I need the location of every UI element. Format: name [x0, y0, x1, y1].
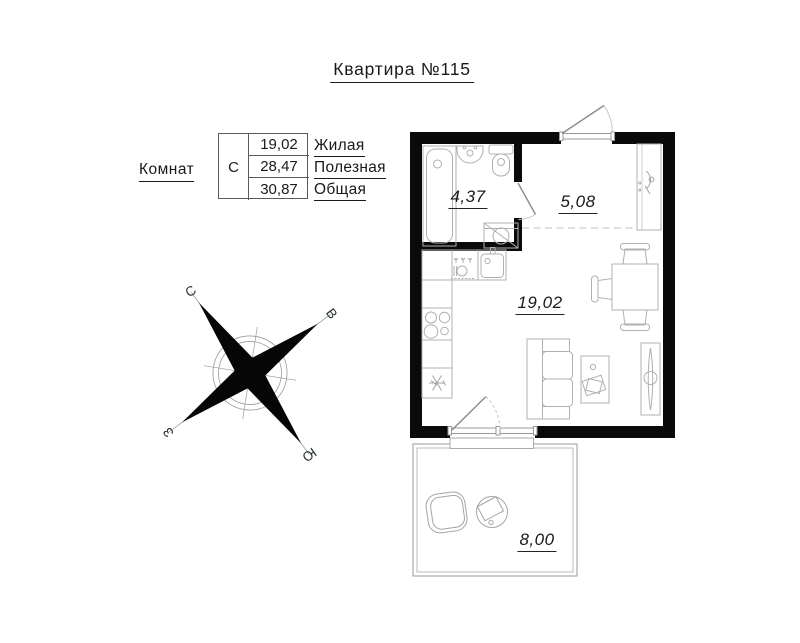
dishwasher-icon	[451, 258, 475, 279]
compass-star	[140, 258, 360, 488]
stove-icon	[424, 312, 449, 338]
chair-icon	[592, 276, 613, 302]
kitchen-sink-icon	[481, 248, 504, 278]
hallway-area-label: 5,08	[558, 192, 597, 214]
hanger-icon	[645, 171, 654, 194]
bathroom-door	[518, 183, 536, 220]
balcony	[413, 444, 577, 576]
compass-north-label: С	[182, 282, 199, 300]
living-area-value: 19,02	[249, 134, 309, 156]
chair-icon	[621, 244, 650, 265]
rooms-label: Комнат	[139, 161, 194, 182]
living-area-label: Жилая	[314, 136, 365, 158]
wardrobe-icon	[637, 144, 661, 230]
chair-icon	[621, 310, 650, 331]
living-room-area-label: 19,02	[515, 293, 564, 315]
compass-south-label: Ю	[299, 445, 319, 465]
fridge-icon	[429, 376, 446, 391]
balcony-area-label: 8,00	[517, 530, 556, 552]
toilet-icon	[489, 145, 513, 176]
compass-east-label: В	[323, 306, 340, 322]
desk-icon	[581, 356, 609, 403]
tv-stand-icon	[641, 343, 660, 415]
balcony-armchair-icon	[425, 490, 469, 534]
area-table: С 19,02 28,47 30,87	[218, 133, 308, 199]
usable-area-value: 28,47	[249, 156, 309, 178]
total-area-value: 30,87	[249, 178, 309, 200]
compass-rose: С В З Ю	[140, 258, 360, 488]
total-area-label: Общая	[314, 180, 366, 202]
sofa-icon	[527, 339, 573, 419]
kitchen-counter	[422, 250, 506, 398]
entrance-door	[560, 106, 615, 141]
compass-west-label: З	[160, 425, 177, 440]
bathroom-area-label: 4,37	[448, 187, 487, 209]
balcony-table-icon	[477, 497, 508, 528]
floor-plan-page: Квартира №115 Комнат С 19,02 28,47 30,87…	[0, 0, 800, 643]
balcony-door	[448, 397, 537, 436]
usable-area-label: Полезная	[314, 158, 386, 180]
dining-table-icon	[592, 244, 659, 331]
balcony-threshold	[450, 438, 534, 449]
page-title: Квартира №115	[330, 59, 474, 83]
bathroom-sink-icon	[457, 146, 483, 163]
rooms-count-cell: С	[219, 134, 249, 200]
